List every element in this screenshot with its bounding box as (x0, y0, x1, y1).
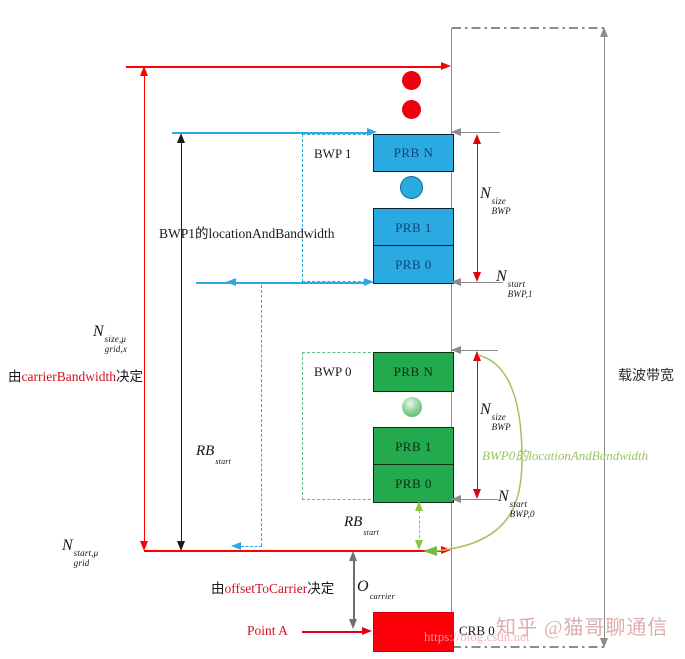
ellipsis-dot-red-bottom-icon (402, 100, 421, 119)
o-carrier-arrow-line (353, 555, 355, 625)
bwp1-span-arrow-down-icon (177, 541, 185, 551)
carrier-bottom-dashdot-line (452, 646, 604, 648)
bwp1-prb-0-label: PRB 0 (395, 257, 432, 273)
carrier-bandwidth-arrow-down-icon (600, 638, 608, 648)
bwp1-prb-1-block: PRB 1 (373, 208, 454, 247)
carrier-bandwidth-arrow-up-icon (600, 27, 608, 37)
bwp1-rbstart-label: RBstart (196, 444, 231, 467)
bwp1-start-tick-arrow-icon (451, 278, 461, 286)
n-grid-size-label: Nsize,μgrid,x (93, 324, 127, 355)
bwp1-bottom-line (196, 282, 368, 284)
bwp1-size-arrow-line (477, 139, 479, 277)
bwp1-prb-0-block: PRB 0 (373, 245, 454, 284)
bwp1-prb-1-label: PRB 1 (395, 220, 432, 236)
grid-size-arrow-up-icon (140, 66, 148, 76)
bwp0-location-label: BWP0的locationAndBandwidth (482, 449, 648, 462)
bwp1-rbstart-foot-arrow-icon (231, 542, 241, 550)
bwp1-prb-n-label: PRB N (394, 145, 434, 161)
bwp1-n-size-label: NsizeBWP (480, 186, 511, 217)
point-a-arrow-icon (362, 627, 372, 635)
carrier-bandwidth-label: 载波带宽 (618, 370, 674, 384)
point-a-label: Point A (247, 624, 288, 638)
ellipsis-dot-blue-icon (400, 176, 423, 199)
o-carrier-arrow-down-icon (349, 619, 357, 629)
grid-size-arrow-line (144, 70, 146, 548)
bwp-carrier-diagram: BWP 1 BWP 0 PRB N PRB 1 PRB 0 PRB N PRB … (0, 0, 685, 659)
bwp0-rbstart-label: RBstart (344, 515, 379, 538)
bwp0-n-start-label: NstartBWP,0 (498, 489, 535, 520)
bwp1-size-arrow-down-icon (473, 272, 481, 282)
bwp0-region-label: BWP 0 (314, 365, 351, 378)
watermark-zhihu: 知乎 @猫哥聊通信 (496, 618, 668, 638)
bwp0-location-curve-arrow-icon (423, 546, 437, 556)
carrier-bandwidth-note: 由carrierBandwidth决定 (8, 370, 143, 384)
grid-top-line (126, 66, 443, 68)
o-carrier-arrow-up-icon (349, 551, 357, 561)
bwp1-prb-n-block: PRB N (373, 134, 454, 172)
ellipsis-dot-red-top-icon (402, 71, 421, 90)
bwp1-region-label: BWP 1 (314, 147, 351, 160)
bwp0-n-size-label: NsizeBWP (480, 402, 511, 433)
grid-start-line (144, 550, 443, 552)
offset-to-carrier-note: 由offsetToCarrier决定 (211, 582, 334, 596)
o-carrier-label: Ocarrier (357, 579, 395, 601)
bwp1-span-arrow-line (181, 138, 183, 542)
n-grid-start-label: Nstart,μgrid (62, 538, 98, 569)
bwp1-n-start-label: NstartBWP,1 (496, 269, 533, 300)
grid-top-line-arrow-icon (441, 62, 451, 70)
point-a-line (302, 631, 364, 633)
bwp1-rbstart-dashed-foot (241, 546, 262, 547)
carrier-top-dashdot-line (452, 27, 604, 29)
bwp1-size-arrow-up-icon (473, 134, 481, 144)
bwp1-span-arrow-up-icon (177, 133, 185, 143)
carrier-bandwidth-arrow-line (604, 31, 605, 643)
bwp1-location-label: BWP1的locationAndBandwidth (159, 227, 335, 241)
bwp1-rbstart-dashed-line (261, 285, 262, 546)
bwp1-top-tick-arrow-icon (451, 128, 461, 136)
bwp1-bottom-line-left-arrow-icon (226, 278, 236, 286)
